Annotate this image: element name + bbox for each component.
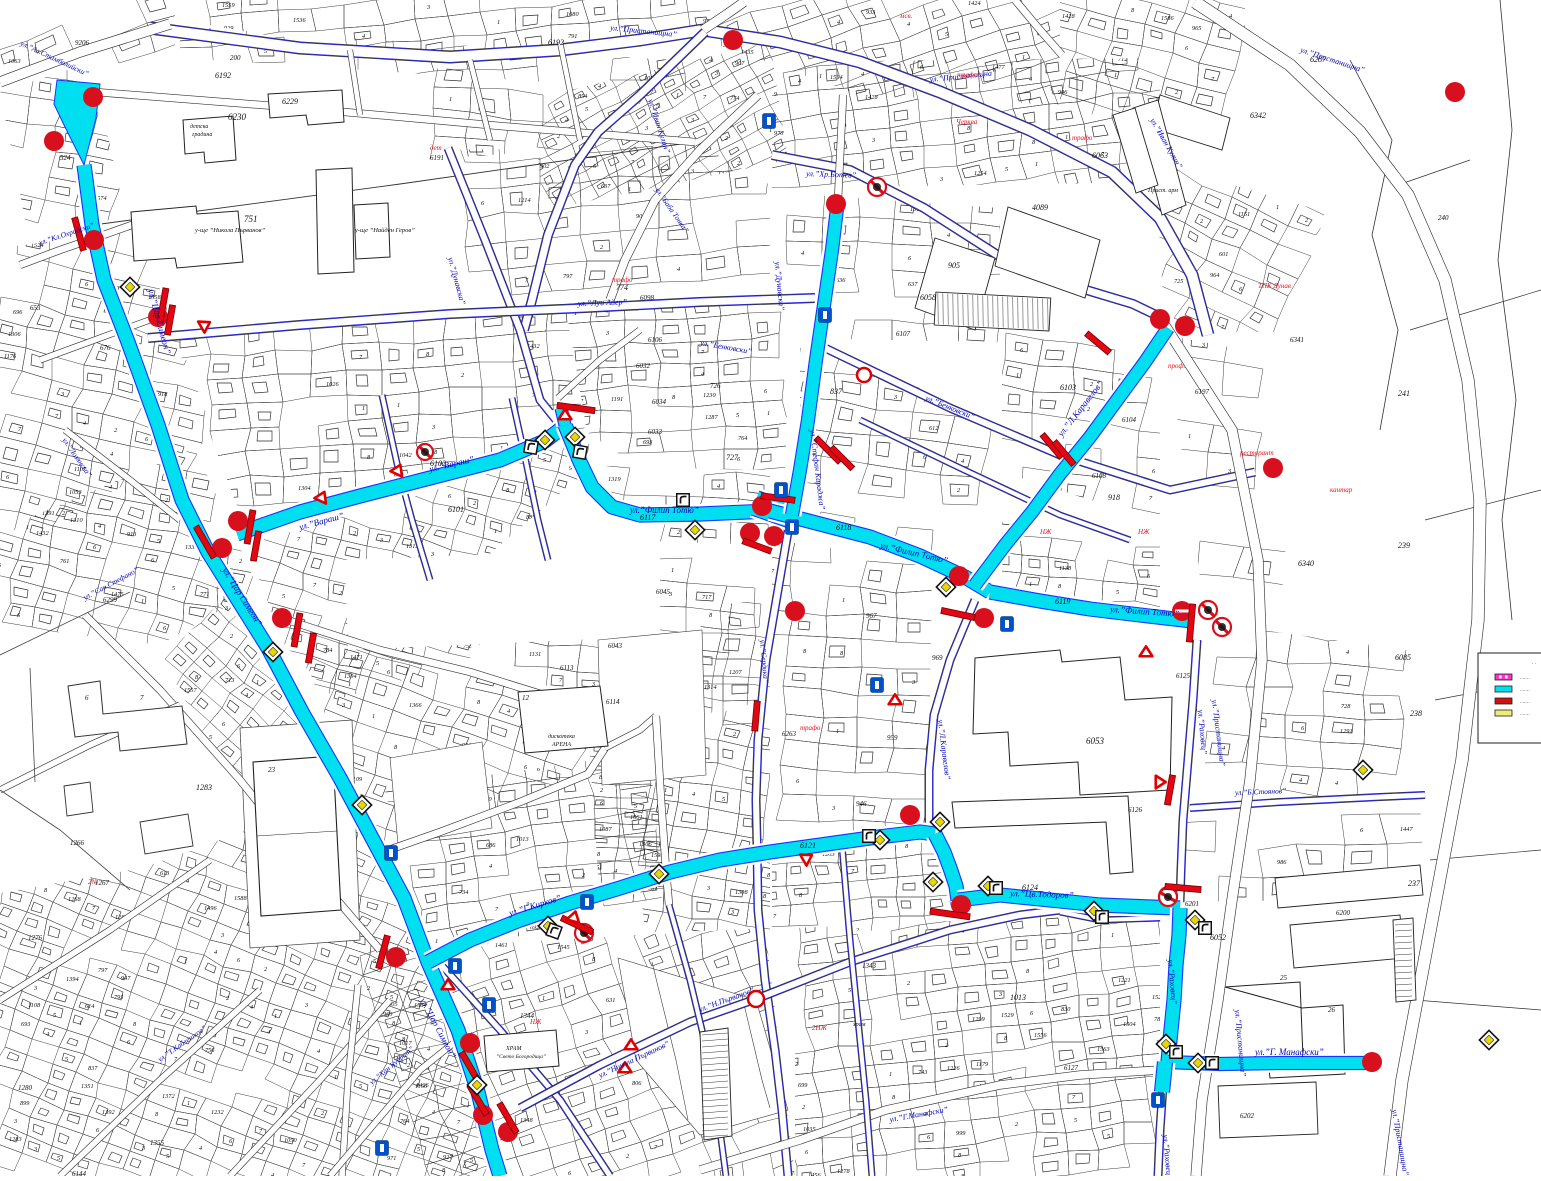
svg-text:5: 5 (1074, 1117, 1077, 1124)
svg-text:4: 4 (245, 692, 248, 699)
svg-text:5: 5 (722, 796, 725, 803)
svg-text:4: 4 (692, 791, 695, 798)
svg-text:1314: 1314 (704, 684, 717, 691)
svg-text:4: 4 (267, 1029, 270, 1036)
svg-text:5: 5 (157, 538, 160, 545)
svg-text:4: 4 (199, 1145, 202, 1152)
svg-text:761: 761 (60, 558, 69, 565)
svg-text:6201: 6201 (1185, 900, 1199, 908)
svg-text:1179: 1179 (976, 1061, 989, 1068)
svg-text:1424: 1424 (968, 0, 981, 7)
svg-text:965: 965 (1192, 25, 1201, 32)
svg-text:1176: 1176 (4, 353, 17, 360)
svg-text:1138: 1138 (1059, 565, 1072, 572)
svg-text:797: 797 (563, 273, 573, 280)
svg-text:1: 1 (1276, 204, 1279, 211)
svg-text:7: 7 (140, 694, 144, 702)
svg-text:ХРАМ: ХРАМ (505, 1046, 522, 1052)
svg-text:1545: 1545 (557, 944, 570, 951)
svg-text:23: 23 (268, 766, 276, 774)
svg-text:631: 631 (606, 997, 615, 1004)
svg-text:5: 5 (543, 457, 546, 464)
svg-text:1394: 1394 (66, 976, 79, 983)
svg-text:967: 967 (866, 612, 877, 620)
svg-text:4: 4 (317, 1048, 320, 1055)
svg-text:717: 717 (702, 594, 712, 601)
svg-text:градина: градина (192, 131, 212, 138)
svg-text:200: 200 (230, 54, 241, 62)
svg-text:1: 1 (435, 938, 438, 945)
svg-text:6108: 6108 (1092, 472, 1107, 480)
svg-text:5: 5 (1116, 589, 1119, 596)
svg-text:Черква: Черква (956, 118, 978, 126)
svg-text:1042: 1042 (399, 452, 412, 459)
svg-text:4: 4 (677, 266, 680, 273)
svg-text:1: 1 (449, 96, 452, 103)
svg-text:НЖ: НЖ (1039, 528, 1052, 536)
svg-text:1348: 1348 (520, 1117, 533, 1124)
svg-text:5: 5 (172, 585, 175, 592)
svg-text:трафо: трафо (1072, 134, 1093, 142)
svg-text:3: 3 (1201, 342, 1205, 349)
svg-text:6229: 6229 (282, 97, 298, 106)
svg-text:1156: 1156 (415, 1083, 428, 1090)
svg-text:4: 4 (98, 523, 101, 530)
svg-text:1586: 1586 (1161, 15, 1174, 22)
svg-text:детска: детска (190, 123, 208, 130)
svg-text:1556: 1556 (1034, 1032, 1047, 1039)
svg-text:637: 637 (908, 281, 918, 288)
svg-text:6197: 6197 (1195, 388, 1210, 396)
svg-text:612: 612 (929, 425, 939, 432)
svg-text:1: 1 (494, 528, 497, 535)
svg-text:6125: 6125 (1176, 672, 1191, 680)
svg-text:1: 1 (836, 728, 839, 735)
svg-text:6107: 6107 (896, 330, 911, 338)
svg-text:1053: 1053 (69, 489, 82, 496)
svg-text:970: 970 (774, 130, 784, 137)
svg-text:1080: 1080 (566, 11, 579, 18)
svg-text:3: 3 (690, 117, 694, 124)
svg-text:1268: 1268 (68, 896, 81, 903)
svg-text:774: 774 (730, 95, 739, 102)
svg-text:1447: 1447 (1400, 826, 1413, 833)
svg-text:6113: 6113 (560, 664, 574, 672)
svg-text:1432: 1432 (36, 530, 49, 537)
svg-text:971: 971 (387, 1155, 396, 1162)
svg-text:728: 728 (1341, 703, 1351, 710)
svg-text:734: 734 (459, 889, 468, 896)
svg-text:у-ще ”Никола Първанов”: у-ще ”Никола Първанов” (194, 227, 265, 234)
svg-text:12: 12 (522, 694, 530, 702)
svg-text:986: 986 (1277, 859, 1287, 866)
svg-text:4: 4 (46, 1031, 49, 1038)
svg-text:6063: 6063 (1092, 151, 1108, 160)
svg-text:3: 3 (690, 168, 694, 175)
svg-text:693: 693 (643, 439, 652, 446)
svg-text:999: 999 (956, 1130, 966, 1137)
svg-text:1291: 1291 (1340, 728, 1353, 735)
svg-text:3: 3 (341, 702, 345, 709)
svg-text:4: 4 (837, 19, 840, 26)
svg-text:3: 3 (714, 70, 718, 77)
svg-text:у-ще ”Найден Геров”: у-ще ”Найден Геров” (354, 227, 415, 234)
svg-text:5: 5 (736, 412, 739, 419)
svg-text:4: 4 (565, 117, 568, 124)
svg-text:6118: 6118 (836, 523, 851, 532)
svg-text:4: 4 (362, 33, 365, 40)
svg-text:653: 653 (30, 304, 41, 312)
svg-text:4: 4 (432, 1109, 435, 1116)
svg-text:947: 947 (121, 975, 131, 982)
svg-text:927: 927 (443, 1154, 453, 1161)
svg-text:1063: 1063 (8, 58, 21, 65)
svg-text:4: 4 (1299, 777, 1302, 784)
svg-text:ул.”Хр.Ботев”: ул.”Хр.Ботев” (805, 169, 857, 180)
svg-text:6287: 6287 (1310, 55, 1327, 64)
svg-text:НЖ: НЖ (1137, 528, 1150, 536)
svg-text:1087: 1087 (599, 826, 612, 833)
svg-text:.......: ....... (1520, 675, 1530, 681)
svg-text:1287: 1287 (705, 414, 718, 421)
svg-text:5: 5 (53, 1012, 56, 1019)
svg-text:4: 4 (798, 78, 801, 85)
svg-text:238: 238 (1410, 709, 1422, 718)
svg-text:4: 4 (709, 57, 712, 64)
svg-text:6043: 6043 (608, 642, 623, 650)
svg-text:1: 1 (184, 958, 187, 965)
svg-text:3: 3 (224, 605, 228, 612)
svg-text:771: 771 (200, 591, 209, 598)
svg-text:6202: 6202 (1240, 1112, 1255, 1120)
svg-text:1: 1 (542, 995, 545, 1002)
svg-text:1: 1 (819, 73, 822, 80)
svg-text:837: 837 (830, 387, 843, 396)
svg-text:трафо: трафо (612, 276, 633, 284)
svg-text:6114: 6114 (606, 698, 620, 706)
svg-text:1343: 1343 (862, 962, 877, 970)
svg-text:4: 4 (83, 420, 86, 427)
svg-text:3: 3 (220, 932, 224, 939)
svg-text:1428: 1428 (1062, 13, 1075, 20)
svg-text:Прист. арм: Прист. арм (1147, 188, 1178, 194)
svg-text:мсв.: мсв. (899, 12, 913, 20)
svg-text:6119: 6119 (1055, 597, 1070, 606)
svg-text:1: 1 (497, 19, 500, 26)
svg-text:3: 3 (605, 330, 609, 337)
svg-text:727: 727 (726, 453, 739, 462)
svg-text:6230: 6230 (228, 112, 247, 122)
svg-text:3: 3 (584, 1029, 588, 1036)
svg-text:5: 5 (376, 660, 379, 667)
svg-text:1304: 1304 (298, 485, 311, 492)
svg-text:1221: 1221 (1118, 977, 1131, 984)
svg-text:240: 240 (1438, 214, 1449, 222)
svg-text:1278: 1278 (837, 1168, 850, 1175)
svg-text:1207: 1207 (729, 669, 742, 676)
svg-text:6192: 6192 (215, 71, 231, 80)
svg-text:1319: 1319 (608, 476, 621, 483)
svg-text:637: 637 (601, 183, 611, 190)
svg-text:6033: 6033 (648, 428, 663, 436)
svg-text:1226: 1226 (947, 1065, 960, 1072)
svg-text:6: 6 (85, 694, 89, 702)
svg-text:1013: 1013 (1010, 993, 1026, 1002)
svg-text:1: 1 (26, 524, 29, 531)
svg-text:1: 1 (1029, 581, 1032, 588)
svg-text:1392: 1392 (102, 1109, 115, 1116)
svg-text:1351: 1351 (81, 1083, 94, 1090)
svg-text:6058: 6058 (920, 293, 936, 302)
svg-text:6121: 6121 (800, 841, 816, 850)
svg-text:4: 4 (1029, 76, 1032, 83)
svg-text:4: 4 (1346, 649, 1349, 656)
svg-text:613: 613 (160, 870, 169, 877)
svg-text:1529: 1529 (1001, 1012, 1014, 1019)
svg-text:1: 1 (1188, 433, 1191, 440)
svg-text:837: 837 (88, 1065, 98, 1072)
svg-text:726: 726 (710, 382, 721, 390)
svg-text:1: 1 (889, 1071, 892, 1078)
svg-text:1131: 1131 (529, 651, 541, 658)
svg-text:1266: 1266 (70, 839, 85, 847)
svg-text:6127: 6127 (1064, 1064, 1079, 1072)
svg-text:1: 1 (256, 679, 259, 686)
svg-text:4: 4 (801, 250, 804, 257)
svg-text:5: 5 (166, 1153, 169, 1160)
svg-text:913: 913 (127, 531, 136, 538)
svg-text:854: 854 (578, 93, 587, 100)
svg-text:6263: 6263 (782, 730, 797, 738)
svg-text:1: 1 (676, 92, 679, 99)
svg-text:4: 4 (271, 1172, 274, 1176)
svg-text:1554: 1554 (830, 74, 843, 81)
svg-text:6052: 6052 (1210, 933, 1226, 942)
svg-text:1306: 1306 (8, 331, 21, 338)
svg-text:1: 1 (1035, 161, 1038, 168)
svg-text:3: 3 (426, 4, 430, 11)
svg-text:743: 743 (918, 1069, 927, 1076)
svg-text:6034: 6034 (652, 398, 667, 406)
svg-text:6117: 6117 (640, 513, 656, 522)
svg-text:918: 918 (158, 391, 168, 398)
svg-text:5: 5 (848, 987, 851, 994)
svg-text:959: 959 (887, 734, 898, 742)
svg-text:5: 5 (390, 994, 393, 1001)
svg-text:1: 1 (1111, 932, 1114, 939)
svg-text:6340: 6340 (1298, 559, 1314, 568)
svg-text:ТПК Дунав: ТПК Дунав (1258, 282, 1291, 290)
svg-text:1: 1 (1065, 134, 1068, 141)
svg-text:4: 4 (961, 458, 964, 465)
svg-text:25: 25 (1280, 974, 1288, 982)
svg-text:дискотека: дискотека (548, 733, 575, 740)
svg-text:1151: 1151 (1238, 211, 1250, 218)
svg-text:713: 713 (225, 677, 234, 684)
svg-text:3: 3 (831, 805, 835, 812)
svg-text:5: 5 (417, 1146, 420, 1153)
svg-text:686: 686 (486, 842, 496, 849)
svg-text:5: 5 (945, 31, 948, 38)
svg-text:1372: 1372 (162, 1093, 175, 1100)
svg-text:6144: 6144 (72, 1170, 87, 1176)
svg-text:806: 806 (632, 1080, 642, 1087)
svg-text:3: 3 (13, 1118, 17, 1125)
svg-text:6124: 6124 (1022, 883, 1038, 892)
svg-text:НЖ: НЖ (529, 1018, 542, 1026)
svg-text:проф.: проф. (1168, 362, 1185, 370)
svg-text:1: 1 (362, 405, 365, 412)
svg-text:1536: 1536 (293, 17, 306, 24)
svg-text:6191: 6191 (430, 154, 444, 162)
svg-text:6032: 6032 (636, 362, 651, 370)
svg-text:1013: 1013 (516, 836, 529, 843)
svg-text:5: 5 (1107, 1133, 1110, 1140)
svg-text:1308: 1308 (735, 889, 748, 896)
svg-text:1: 1 (372, 713, 375, 720)
svg-text:трафо: трафо (957, 71, 978, 79)
svg-text:6342: 6342 (1250, 111, 1266, 120)
svg-text:5: 5 (470, 1157, 473, 1164)
svg-text:241: 241 (1398, 389, 1410, 398)
svg-text:906: 906 (1058, 89, 1068, 96)
svg-text:774: 774 (616, 283, 628, 292)
svg-text:4: 4 (110, 451, 113, 458)
svg-text:6053: 6053 (1086, 736, 1105, 746)
svg-text:751: 751 (244, 214, 258, 224)
svg-text:4: 4 (947, 232, 950, 239)
svg-text:1355: 1355 (150, 1139, 165, 1147)
svg-text:.......: ....... (1520, 687, 1530, 693)
svg-text:1230: 1230 (703, 392, 716, 399)
svg-text:1: 1 (1114, 72, 1117, 79)
svg-text:6101: 6101 (448, 505, 464, 514)
svg-text:4089: 4089 (1032, 203, 1048, 212)
svg-text:1: 1 (187, 1100, 190, 1107)
svg-text:693: 693 (21, 1021, 30, 1028)
svg-text:699: 699 (798, 1082, 808, 1089)
svg-text:6102: 6102 (430, 459, 446, 468)
svg-text:918: 918 (1108, 493, 1120, 502)
svg-text:1: 1 (671, 567, 674, 574)
svg-text:905: 905 (948, 261, 960, 270)
svg-text:1504: 1504 (1123, 1021, 1136, 1028)
svg-text:3: 3 (379, 537, 383, 544)
svg-text:4: 4 (489, 863, 492, 870)
svg-text:”Свето Богородица”: ”Свето Богородица” (496, 1053, 546, 1060)
svg-text:764: 764 (400, 1118, 409, 1125)
svg-text:3: 3 (33, 985, 37, 992)
svg-text:1280: 1280 (18, 1084, 33, 1092)
svg-text:. .: . . (1532, 660, 1536, 666)
svg-text:1026: 1026 (326, 381, 339, 388)
svg-text:1559: 1559 (222, 2, 235, 9)
svg-text:трафо: трафо (800, 724, 821, 732)
svg-text:791: 791 (568, 33, 577, 40)
svg-text:9206: 9206 (75, 39, 90, 47)
svg-text:6192: 6192 (548, 38, 564, 47)
svg-text:1: 1 (79, 1020, 82, 1027)
svg-text:6103: 6103 (1060, 383, 1076, 392)
svg-text:1: 1 (334, 1074, 337, 1081)
svg-text:.......: ....... (1520, 699, 1530, 705)
svg-text:1283: 1283 (9, 1136, 22, 1143)
svg-text:797: 797 (98, 967, 108, 974)
svg-text:1214: 1214 (518, 197, 531, 204)
svg-text:969: 969 (932, 654, 943, 662)
svg-text:3: 3 (730, 909, 734, 916)
svg-text:3: 3 (706, 885, 710, 892)
svg-text:1: 1 (1022, 54, 1025, 61)
svg-text:5: 5 (359, 1083, 362, 1090)
svg-text:1: 1 (348, 681, 351, 688)
svg-text:614: 614 (85, 1003, 94, 1010)
svg-text:4: 4 (109, 484, 112, 491)
svg-text:239: 239 (1398, 541, 1410, 550)
svg-text:6299: 6299 (103, 596, 118, 604)
svg-text:4: 4 (717, 483, 720, 490)
svg-text:5: 5 (57, 1155, 60, 1162)
svg-text:1: 1 (842, 597, 845, 604)
svg-text:4: 4 (907, 21, 910, 28)
svg-text:1: 1 (274, 1013, 277, 1020)
svg-text:4: 4 (507, 708, 510, 715)
svg-text:4: 4 (214, 949, 217, 956)
svg-text:5: 5 (373, 958, 376, 965)
svg-text:1304: 1304 (344, 673, 357, 680)
svg-text:1456: 1456 (808, 1172, 821, 1176)
svg-text:784: 784 (323, 647, 332, 654)
svg-text:6104: 6104 (1122, 416, 1137, 424)
svg-text:6085: 6085 (1395, 653, 1411, 662)
svg-text:676: 676 (100, 344, 111, 352)
svg-text:6098: 6098 (640, 294, 655, 302)
svg-text:6045: 6045 (656, 588, 671, 596)
svg-text:1557: 1557 (184, 687, 197, 694)
svg-text:1061: 1061 (630, 814, 643, 821)
svg-text:830: 830 (1061, 1006, 1071, 1013)
svg-text:ул.”Г. Манафски”: ул.”Г. Манафски” (1254, 1047, 1324, 1057)
svg-text:1: 1 (767, 410, 770, 417)
svg-text:3: 3 (939, 176, 943, 183)
svg-text:ресторант: ресторант (1239, 449, 1274, 457)
svg-text:5: 5 (65, 1056, 68, 1063)
svg-text:5: 5 (585, 106, 588, 113)
svg-text:3: 3 (60, 391, 64, 398)
svg-text:ул.”Луи Айер”: ул.”Луи Айер” (577, 297, 628, 308)
svg-text:1588: 1588 (234, 895, 247, 902)
svg-text:5: 5 (1005, 166, 1008, 173)
svg-text:1232: 1232 (211, 1109, 224, 1116)
svg-text:2НЖ: 2НЖ (812, 1024, 828, 1032)
svg-text:3: 3 (893, 394, 897, 401)
svg-text:6126: 6126 (1128, 806, 1143, 814)
svg-text:1: 1 (1016, 372, 1019, 379)
svg-text:1276: 1276 (28, 934, 43, 942)
svg-text:4: 4 (1335, 780, 1338, 787)
svg-text:524: 524 (60, 154, 71, 162)
svg-text:1366: 1366 (409, 702, 422, 709)
svg-text:2№: 2№ (88, 878, 99, 886)
svg-text:1108: 1108 (28, 1002, 41, 1009)
svg-text:725: 725 (1174, 278, 1183, 285)
svg-text:1: 1 (141, 598, 144, 605)
svg-text:4: 4 (861, 71, 864, 78)
svg-text:601: 601 (1219, 251, 1228, 258)
svg-text:1428: 1428 (865, 94, 878, 101)
svg-text:1306: 1306 (639, 841, 652, 848)
svg-text:1563: 1563 (1097, 1046, 1110, 1053)
